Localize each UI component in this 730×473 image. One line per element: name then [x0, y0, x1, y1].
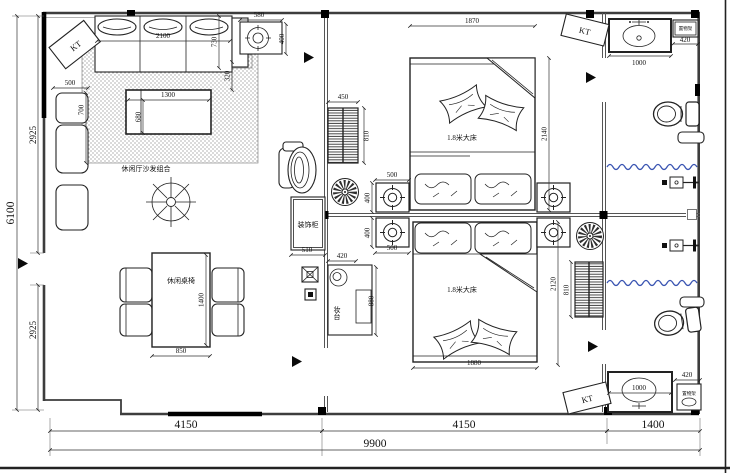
dim-sofa-depth: 730: [211, 36, 219, 47]
dim-table-width: 1300: [161, 91, 176, 99]
dim-sink-top: 1000: [632, 59, 647, 67]
dim-bottom-right: 1400: [642, 419, 665, 431]
dim-armchair-width: 500: [65, 79, 76, 87]
bathroom-bottom: [607, 240, 704, 413]
dim-bottom-total: 9900: [364, 438, 387, 450]
dim-left-lower: 2925: [28, 321, 38, 340]
dim-sofa-width: 2100: [156, 32, 171, 40]
dim-b1-unit-width: 500: [387, 171, 398, 179]
dim-b1-unit-depth: 400: [364, 192, 372, 203]
dim-bottom-left: 4150: [175, 419, 198, 431]
dim-bed1-length: 2140: [541, 127, 549, 142]
dim-bed2-length: 2120: [550, 277, 558, 292]
deco-cabinet-label: 装饰柜: [298, 220, 319, 229]
dim-b2-unit-depth: 400: [364, 227, 372, 238]
dim-b2-cabinet-length: 810: [563, 284, 571, 295]
dim-left-total: 6100: [5, 201, 17, 224]
dresser: [328, 265, 372, 335]
bed1-label: 1.8米大床: [447, 133, 477, 142]
floor-plan-drawing: KT KT KT 4150 4150 1400 9900 6100 2925 2…: [0, 0, 730, 473]
dim-bed2-width: 1880: [467, 359, 482, 367]
floor-plan-canvas: KT KT KT 4150 4150 1400 9900 6100 2925 2…: [0, 0, 730, 473]
desk-chair: [279, 142, 316, 193]
sofa-area-label: 休闲厅沙发组合: [122, 164, 171, 173]
dim-b2-unit-width: 500: [387, 244, 398, 252]
shelf-top-label: 置物架: [679, 25, 693, 32]
dim-dresser-length: 880: [368, 295, 376, 306]
dim-sofa-gap: 320: [224, 70, 232, 81]
bedroom2-cabinet: [575, 262, 603, 317]
floor-symbols: [302, 267, 318, 300]
dim-deco-cabinet-width: 510: [302, 246, 313, 254]
dresser-label: 妆台: [333, 305, 341, 321]
dim-table-depth: 680: [135, 111, 143, 122]
dim-dining-width: 850: [176, 347, 187, 355]
dim-b1-cabinet-width: 450: [338, 93, 349, 101]
dim-shelf-bottom: 420: [682, 371, 693, 379]
bed2-label: 1.8米大床: [447, 285, 477, 294]
dim-armchair-depth: 700: [78, 104, 86, 115]
dining-table: [120, 253, 244, 347]
dim-side-unit-depth: 400: [278, 33, 286, 44]
dim-left-upper: 2925: [28, 126, 38, 145]
dim-shelf-top: 420: [680, 36, 691, 44]
dim-dining-length: 1400: [198, 293, 206, 308]
bedroom1-cabinet: [328, 108, 358, 163]
dim-sink-bottom: 1000: [632, 384, 647, 392]
ac-unit-bottom-right: KT: [563, 382, 611, 414]
dim-side-unit-width: 580: [254, 11, 265, 19]
shelf-bottom-label: 置物架: [682, 390, 696, 397]
side-unit: [240, 22, 282, 54]
sofa: [95, 16, 248, 72]
ac-unit-top-right: KT: [561, 14, 609, 46]
dim-bed1-width: 1870: [465, 17, 480, 25]
dining-set-label: 休闲桌椅: [167, 276, 195, 285]
dim-b1-cabinet-length: 810: [363, 130, 371, 141]
ceiling-lamp: [146, 177, 196, 227]
dim-bottom-mid: 4150: [453, 419, 476, 431]
dim-dresser-width: 420: [337, 252, 348, 260]
